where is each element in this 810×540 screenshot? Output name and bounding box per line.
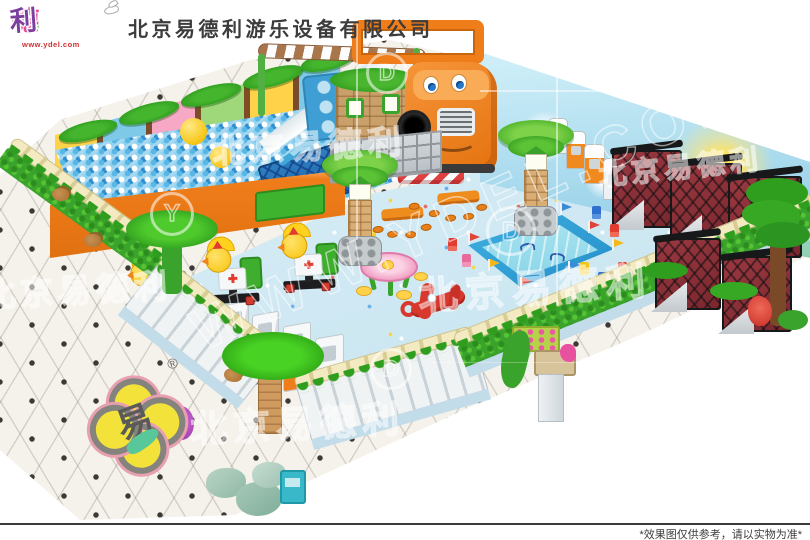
cross-icon bbox=[228, 274, 237, 283]
ride-wheel bbox=[245, 296, 254, 305]
chair-seat bbox=[462, 262, 471, 267]
flag-pennant bbox=[614, 239, 624, 247]
playground-render: 易 ® 北京易德利 北京易德利 北京易德利 北京易德利 北京易德利 WWW.YD… bbox=[0, 0, 810, 540]
stool bbox=[405, 231, 417, 239]
corner-tree-canopy bbox=[222, 332, 324, 380]
bush bbox=[778, 310, 808, 330]
leaf-cluster bbox=[644, 262, 688, 279]
stool bbox=[476, 203, 488, 211]
disclaimer-text: *效果图仅供参考，请以实物为准* bbox=[639, 526, 802, 540]
right-corner-tree bbox=[742, 178, 810, 344]
truck-eye-iris bbox=[456, 81, 464, 89]
big-leaf bbox=[495, 328, 534, 391]
dolphin-toy bbox=[550, 252, 566, 262]
machine-window bbox=[589, 159, 600, 169]
flag-pennant bbox=[470, 233, 480, 241]
flag-pennant bbox=[522, 277, 532, 285]
column-base bbox=[538, 374, 564, 422]
flag-pennant bbox=[590, 221, 600, 229]
yellow-ball bbox=[180, 118, 207, 145]
plane-ride bbox=[398, 276, 476, 329]
chicken-comb bbox=[212, 240, 222, 249]
kids-chair bbox=[462, 254, 472, 268]
company-name: 北京易德利游乐设备有限公司 bbox=[128, 13, 434, 42]
table-leg bbox=[388, 280, 393, 296]
truck-eye-iris bbox=[428, 83, 436, 91]
chair-seat bbox=[610, 232, 619, 237]
dining-table-set bbox=[426, 182, 487, 229]
chicken-beak bbox=[277, 243, 284, 251]
chair-seat bbox=[592, 214, 601, 219]
flag-post bbox=[612, 239, 614, 251]
footer-divider bbox=[0, 523, 810, 525]
chicken-comb bbox=[288, 226, 298, 235]
flag-post bbox=[520, 277, 522, 289]
table-top bbox=[437, 190, 480, 206]
flag-pennant bbox=[570, 261, 580, 269]
palm-tree-column bbox=[498, 120, 574, 240]
kids-chair bbox=[610, 224, 620, 238]
flag-post bbox=[588, 221, 590, 233]
logo-url: www.ydel.com bbox=[22, 40, 80, 49]
corner-tree-canopy bbox=[126, 210, 218, 248]
palm-tree-column bbox=[322, 150, 398, 270]
flag-post bbox=[488, 259, 490, 271]
stool bbox=[445, 214, 457, 222]
rock-decor bbox=[236, 482, 282, 516]
birdhouse bbox=[349, 184, 371, 200]
red-coral bbox=[748, 296, 772, 326]
flag-pennant bbox=[490, 259, 500, 267]
dove-icon bbox=[100, 1, 122, 16]
tree-foliage bbox=[756, 222, 810, 248]
kids-chair bbox=[448, 238, 458, 252]
stool bbox=[428, 210, 440, 218]
cross-icon bbox=[304, 260, 313, 269]
aqua-box bbox=[280, 470, 306, 504]
birdhouse bbox=[525, 154, 547, 170]
chair-seat bbox=[448, 246, 457, 251]
squirrel-figure bbox=[84, 234, 101, 247]
tree-trunk bbox=[348, 200, 372, 240]
chicken-beak bbox=[201, 257, 208, 265]
truck-eye bbox=[451, 74, 467, 92]
corner-tree-trunk bbox=[258, 372, 282, 434]
cage-ramp bbox=[651, 282, 687, 312]
ride-wheel bbox=[321, 282, 330, 291]
yellow-ball bbox=[210, 146, 232, 168]
stool bbox=[414, 272, 428, 281]
planter-column bbox=[502, 322, 586, 422]
stone-base bbox=[514, 206, 558, 236]
kids-chair bbox=[592, 206, 602, 220]
flag-post bbox=[568, 261, 570, 273]
company-logo: 易德利 www.ydel.com bbox=[14, 2, 126, 54]
corner-tree-trunk bbox=[162, 242, 182, 294]
stone-base bbox=[338, 236, 382, 266]
logo-char: 利 bbox=[9, 3, 38, 39]
capsule-machine bbox=[584, 144, 605, 184]
ride-wheel bbox=[285, 284, 294, 293]
plane-tail-wing bbox=[448, 284, 462, 311]
kids-chair bbox=[580, 262, 590, 276]
chair-seat bbox=[580, 270, 589, 275]
truck-eye bbox=[423, 76, 439, 94]
tree-trunk bbox=[524, 170, 548, 210]
pink-flower bbox=[560, 344, 576, 362]
slide-post bbox=[258, 54, 265, 116]
stool bbox=[463, 213, 475, 221]
stool bbox=[356, 286, 372, 296]
flag-post bbox=[468, 233, 470, 245]
chicken-beak bbox=[126, 271, 133, 279]
squirrel-figure bbox=[52, 188, 69, 201]
